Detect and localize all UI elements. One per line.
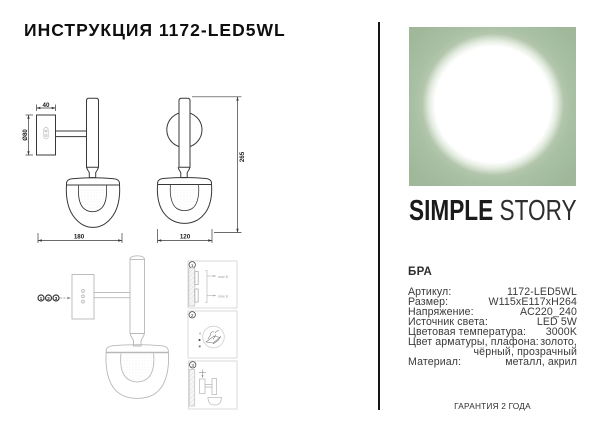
svg-text:3: 3	[55, 296, 58, 302]
svg-text:1: 1	[40, 296, 43, 302]
svg-text:3: 3	[191, 363, 194, 368]
svg-text:max 8: max 8	[218, 275, 228, 279]
svg-text:2: 2	[191, 313, 194, 318]
svg-text:40: 40	[43, 102, 50, 109]
svg-text:2: 2	[47, 296, 50, 302]
svg-text:265: 265	[239, 151, 246, 162]
svg-text:1: 1	[191, 263, 194, 268]
svg-text:180: 180	[74, 234, 85, 241]
svg-text:max 8: max 8	[218, 294, 228, 298]
svg-text:Ø80: Ø80	[22, 129, 29, 141]
svg-text:120: 120	[180, 234, 191, 241]
